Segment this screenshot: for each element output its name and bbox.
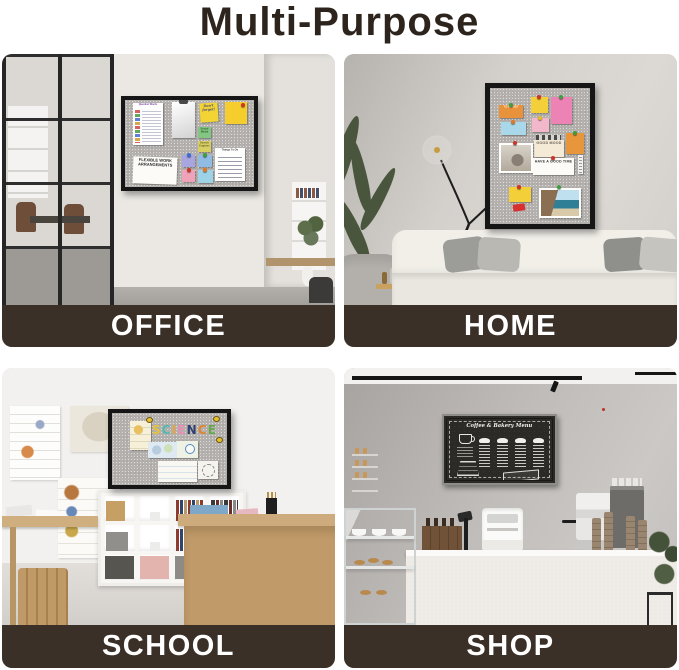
right-desk xyxy=(178,514,335,625)
pushpin-icon xyxy=(187,168,191,172)
search-engines-note: Search Engines xyxy=(198,141,211,152)
school-board-felt: S C I E N C E xyxy=(112,413,227,485)
pushpin-icon xyxy=(203,153,207,157)
left-desk xyxy=(2,516,98,625)
paper-cup-stack xyxy=(592,518,601,550)
school-photo: S C I E N C E xyxy=(2,368,335,625)
sofa-pillow xyxy=(477,237,521,273)
hanging-tag xyxy=(578,155,583,174)
office-banner: OFFICE xyxy=(2,305,335,347)
register-slot xyxy=(487,528,518,531)
office-label: OFFICE xyxy=(111,310,226,343)
pushpin-icon xyxy=(538,116,542,120)
menu-side-text xyxy=(457,447,473,457)
home-label: HOME xyxy=(464,310,557,343)
bee-doodle-icon xyxy=(146,417,153,423)
pastry xyxy=(376,590,387,595)
register-screen xyxy=(487,514,518,523)
light-blue-note xyxy=(198,170,213,183)
kid-drawing-large xyxy=(158,461,197,482)
clipped-paper xyxy=(172,102,195,138)
cash-register xyxy=(482,508,523,550)
beach-photo-image xyxy=(541,190,579,216)
pushpin-icon xyxy=(241,103,245,107)
shop-plant xyxy=(649,518,677,598)
glass-display-case xyxy=(344,508,416,625)
case-shelf xyxy=(346,566,414,569)
track-light xyxy=(352,376,582,380)
pastry-doodle-icon xyxy=(515,438,526,443)
cat-photo-image xyxy=(501,145,531,171)
office-right-desk xyxy=(266,258,335,266)
panel-office: Question Words Don't forget! xyxy=(2,54,335,347)
counter-front xyxy=(406,556,677,625)
things-to-do-list: Things To Do xyxy=(215,148,245,181)
menu-column xyxy=(497,438,510,472)
menu-item-lines xyxy=(479,445,490,469)
question-words-color-column xyxy=(135,110,140,143)
cat-photo xyxy=(499,143,533,173)
shelf-cubby xyxy=(139,525,170,550)
science-letter: C xyxy=(198,424,207,436)
shop-banner: SHOP xyxy=(344,625,677,668)
office-photo: Question Words Don't forget! xyxy=(2,54,335,305)
desk-top xyxy=(178,514,335,526)
science-letter: E xyxy=(208,424,216,436)
wooden-chair xyxy=(18,568,68,625)
syrup-bottles xyxy=(426,518,456,526)
pastry xyxy=(382,560,393,565)
kid-drawing-pastel xyxy=(148,442,177,458)
jar-icon xyxy=(363,448,367,454)
flexible-work-paper: FLEXIBLE WORK ARRANGEMENTS xyxy=(133,156,178,185)
pastry-doodle-icon xyxy=(479,438,490,443)
paper-cup-stack xyxy=(626,516,635,550)
office-right-chair xyxy=(309,277,333,303)
pushpin-icon xyxy=(203,168,207,172)
science-letter: N xyxy=(187,424,197,436)
cups-on-machine xyxy=(612,478,642,486)
kid-drawing-circle xyxy=(198,461,218,479)
desk-front xyxy=(184,526,335,625)
pushpin-icon xyxy=(559,95,563,99)
jar-icon xyxy=(355,460,359,466)
orange-note xyxy=(566,133,584,154)
office-plant xyxy=(296,212,326,252)
pastry xyxy=(354,560,365,565)
shelf-cubby xyxy=(139,555,170,580)
pastry-doodle-icon xyxy=(497,438,508,443)
sofa xyxy=(392,230,677,305)
home-board-felt: TO DO LIST GOOD MOOD xyxy=(490,88,590,224)
pink-paper xyxy=(551,97,572,124)
menu-item-lines xyxy=(515,445,526,469)
bee-doodle-icon xyxy=(213,416,220,422)
panel-school: S C I E N C E xyxy=(2,368,335,668)
science-letters: S C I E N C E xyxy=(152,422,216,437)
beach-photo xyxy=(539,188,581,218)
yellow-note xyxy=(531,97,548,113)
home-photo: TO DO LIST GOOD MOOD xyxy=(344,54,677,305)
wooden-crate xyxy=(422,526,462,550)
wall-sensor-dot xyxy=(602,408,605,411)
purple-note xyxy=(182,155,195,167)
wall-poster xyxy=(10,406,60,480)
school-bulletin-board: S C I E N C E xyxy=(108,409,231,489)
bar-stool xyxy=(647,592,673,625)
paper-cup-stack xyxy=(604,512,613,550)
social-media-note: Social Media xyxy=(198,127,211,138)
pushpin-icon xyxy=(557,185,561,189)
chalkboard-surface: Coffee & Bakery Menu xyxy=(446,418,553,481)
decor-bottle xyxy=(382,272,387,284)
track-light xyxy=(635,372,677,375)
question-words-list: Question Words xyxy=(133,103,163,145)
have-a-good-time-card: HAVE A GOOD TIME xyxy=(533,158,574,175)
wood-box xyxy=(106,501,125,521)
bee-doodle-icon xyxy=(216,437,223,443)
yellow-note-bottom xyxy=(509,187,531,202)
circle-doodle-icon xyxy=(202,464,215,477)
page-title: Multi-Purpose xyxy=(0,0,679,52)
paper-cup-stack xyxy=(638,520,647,550)
pushpin-icon xyxy=(573,131,577,135)
jar-icon xyxy=(355,448,359,454)
sofa-pillow xyxy=(639,236,677,273)
jar-icon xyxy=(363,460,367,466)
science-letter: E xyxy=(177,424,185,436)
shop-photo: Coffee & Bakery Menu xyxy=(344,368,677,625)
fabric-drawer xyxy=(105,556,134,579)
school-label: SCHOOL xyxy=(102,630,235,663)
small-pink-note xyxy=(532,118,549,132)
drink-doodle-icon xyxy=(533,438,544,443)
case-shelf xyxy=(346,536,414,539)
pushpin-icon xyxy=(537,95,541,99)
sofa-seat xyxy=(392,273,677,305)
good-mood-card: GOOD MOOD xyxy=(534,140,564,157)
pushpin-icon xyxy=(551,156,555,160)
jar-icon xyxy=(355,472,359,478)
science-letter: C xyxy=(162,424,171,436)
blank-yellow-note xyxy=(225,102,247,124)
small-cup xyxy=(150,542,160,551)
pastry xyxy=(360,590,371,595)
bowl xyxy=(392,529,406,536)
menu-column xyxy=(515,438,528,472)
jar-icon xyxy=(363,472,367,478)
todo-list-lines xyxy=(218,157,242,178)
pushpin-icon xyxy=(513,141,517,145)
blue-notebook xyxy=(190,505,228,514)
light-blue-note xyxy=(501,122,526,135)
office-board-felt: Question Words Don't forget! xyxy=(125,100,254,187)
pushpin-icon xyxy=(187,153,191,157)
shop-counter xyxy=(406,550,677,625)
shelf-cubby xyxy=(104,525,135,550)
pushpin-icon xyxy=(517,185,521,189)
desk-top xyxy=(2,516,98,527)
tissue-box xyxy=(150,512,160,521)
product-collage: Multi-Purpose xyxy=(0,0,679,670)
lips-sticker-icon xyxy=(513,203,526,212)
panel-home: TO DO LIST GOOD MOOD xyxy=(344,54,677,347)
pencil-cup xyxy=(266,498,277,514)
pushpin-icon xyxy=(511,120,515,124)
bowl xyxy=(372,529,386,536)
shop-label: SHOP xyxy=(466,630,554,663)
home-banner: HOME xyxy=(344,305,677,347)
menu-column xyxy=(479,438,492,472)
pastry xyxy=(368,558,379,563)
science-letter: S xyxy=(152,424,161,436)
science-letter: I xyxy=(172,424,176,436)
home-bulletin-board: TO DO LIST GOOD MOOD xyxy=(485,83,595,229)
question-words-lines xyxy=(142,111,161,143)
dont-forget-note: Don't forget! xyxy=(199,102,218,122)
bowl xyxy=(352,529,366,536)
to-do-list-note: TO DO LIST xyxy=(499,105,523,118)
cake-doodle-icon xyxy=(457,461,479,476)
jar-shelves xyxy=(352,444,378,492)
pink-note xyxy=(182,170,195,182)
menu-item-lines xyxy=(533,445,544,469)
menu-column xyxy=(533,438,546,472)
question-words-title: Question Words xyxy=(133,103,163,106)
shelf-cubby xyxy=(139,496,170,521)
pushpin-icon xyxy=(509,103,513,107)
magazine-box xyxy=(106,532,128,551)
shelf-cubby xyxy=(104,555,135,580)
office-bulletin-board: Question Words Don't forget! xyxy=(121,96,258,191)
magnifier-doodle-icon xyxy=(185,444,195,454)
kid-drawing-magnifier xyxy=(177,441,198,458)
office-glass-partition xyxy=(2,54,114,305)
paper-clip-icon xyxy=(179,100,188,104)
panel-shop: Coffee & Bakery Menu xyxy=(344,368,677,668)
menu-title: Coffee & Bakery Menu xyxy=(447,423,552,429)
desk-leg xyxy=(10,527,16,625)
shelf-cubby xyxy=(104,496,135,521)
ribbon-doodle-icon xyxy=(503,469,539,481)
school-banner: SCHOOL xyxy=(2,625,335,668)
shop-chalkboard: Coffee & Bakery Menu xyxy=(442,414,557,485)
coffee-cup-doodle-icon xyxy=(459,434,472,444)
office-right-books xyxy=(296,188,320,198)
fabric-drawer xyxy=(140,556,169,579)
card-reader-stand xyxy=(464,518,468,550)
blue-note xyxy=(198,155,212,167)
panels-grid: Question Words Don't forget! xyxy=(2,54,677,668)
menu-item-lines xyxy=(497,445,508,469)
